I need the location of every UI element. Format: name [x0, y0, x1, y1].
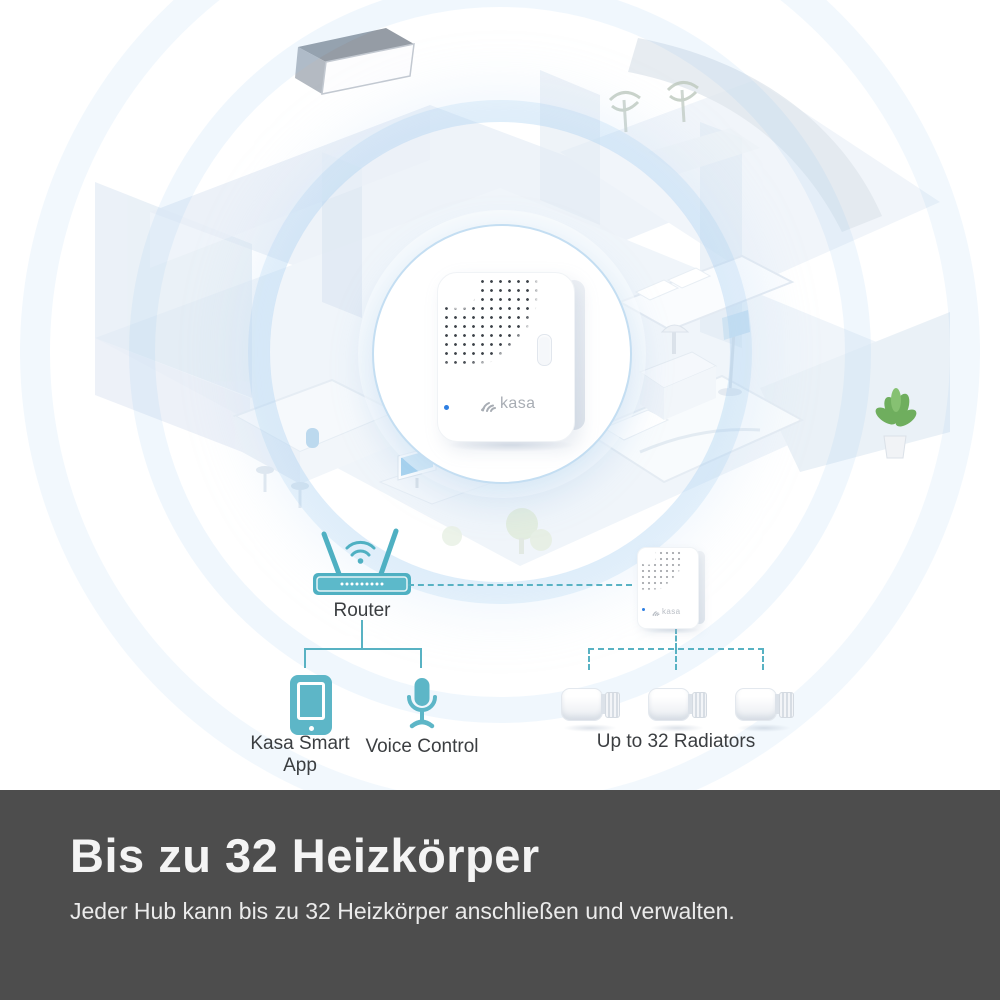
ac-unit	[295, 28, 414, 94]
trv-knob	[605, 692, 620, 718]
app-label: Kasa Smart App	[243, 733, 357, 777]
connector-line	[304, 648, 306, 668]
router-label: Router	[302, 600, 422, 622]
hub-front-face: kasa	[637, 547, 699, 629]
hub-side-button	[537, 334, 552, 366]
phone-home-dot	[309, 726, 314, 731]
router-icon	[299, 523, 425, 597]
feature-banner: Bis zu 32 Heizkörper Jeder Hub kann bis …	[0, 790, 1000, 1000]
kasa-logo-text: kasa	[662, 608, 681, 616]
product-infographic: kasa Router Kasa Smart App	[0, 0, 1000, 1000]
kasa-hub-device: kasa	[437, 272, 585, 442]
status-led	[642, 608, 645, 611]
microphone-icon	[402, 676, 442, 734]
banner-title: Bis zu 32 Heizkörper	[70, 828, 540, 883]
trv-body	[648, 688, 690, 721]
trv-body	[561, 688, 603, 721]
kasa-logo-icon	[652, 609, 660, 616]
hub-front-face: kasa	[437, 272, 575, 442]
radiator-valve-icon	[561, 686, 621, 734]
kasa-logo: kasa	[652, 608, 681, 616]
speaker-grille-pattern	[442, 277, 546, 399]
kasa-logo-text: kasa	[500, 396, 535, 412]
dashed-line	[588, 648, 590, 670]
dashed-line	[408, 584, 632, 586]
radiator-valve-icon	[648, 686, 708, 734]
voice-label: Voice Control	[360, 736, 484, 758]
banner-subtitle: Jeder Hub kann bis zu 32 Heizkörper ansc…	[70, 898, 735, 925]
dashed-line	[675, 648, 677, 670]
connector-line	[420, 648, 422, 668]
trv-knob	[692, 692, 707, 718]
dashed-line	[762, 648, 764, 670]
radiator-valve-icon	[735, 686, 795, 734]
smartphone-icon	[290, 675, 332, 735]
trv-knob	[779, 692, 794, 718]
connector-line	[304, 648, 422, 650]
radiators-label: Up to 32 Radiators	[586, 731, 766, 753]
connector-line	[361, 620, 363, 649]
status-led	[444, 405, 449, 410]
kasa-logo-icon	[480, 397, 497, 412]
phone-screen	[297, 682, 325, 720]
trv-body	[735, 688, 777, 721]
kasa-logo: kasa	[480, 396, 535, 412]
kasa-hub-device-small: kasa	[637, 547, 705, 629]
wifi-icon	[347, 542, 374, 555]
speaker-grille-pattern	[640, 550, 686, 606]
